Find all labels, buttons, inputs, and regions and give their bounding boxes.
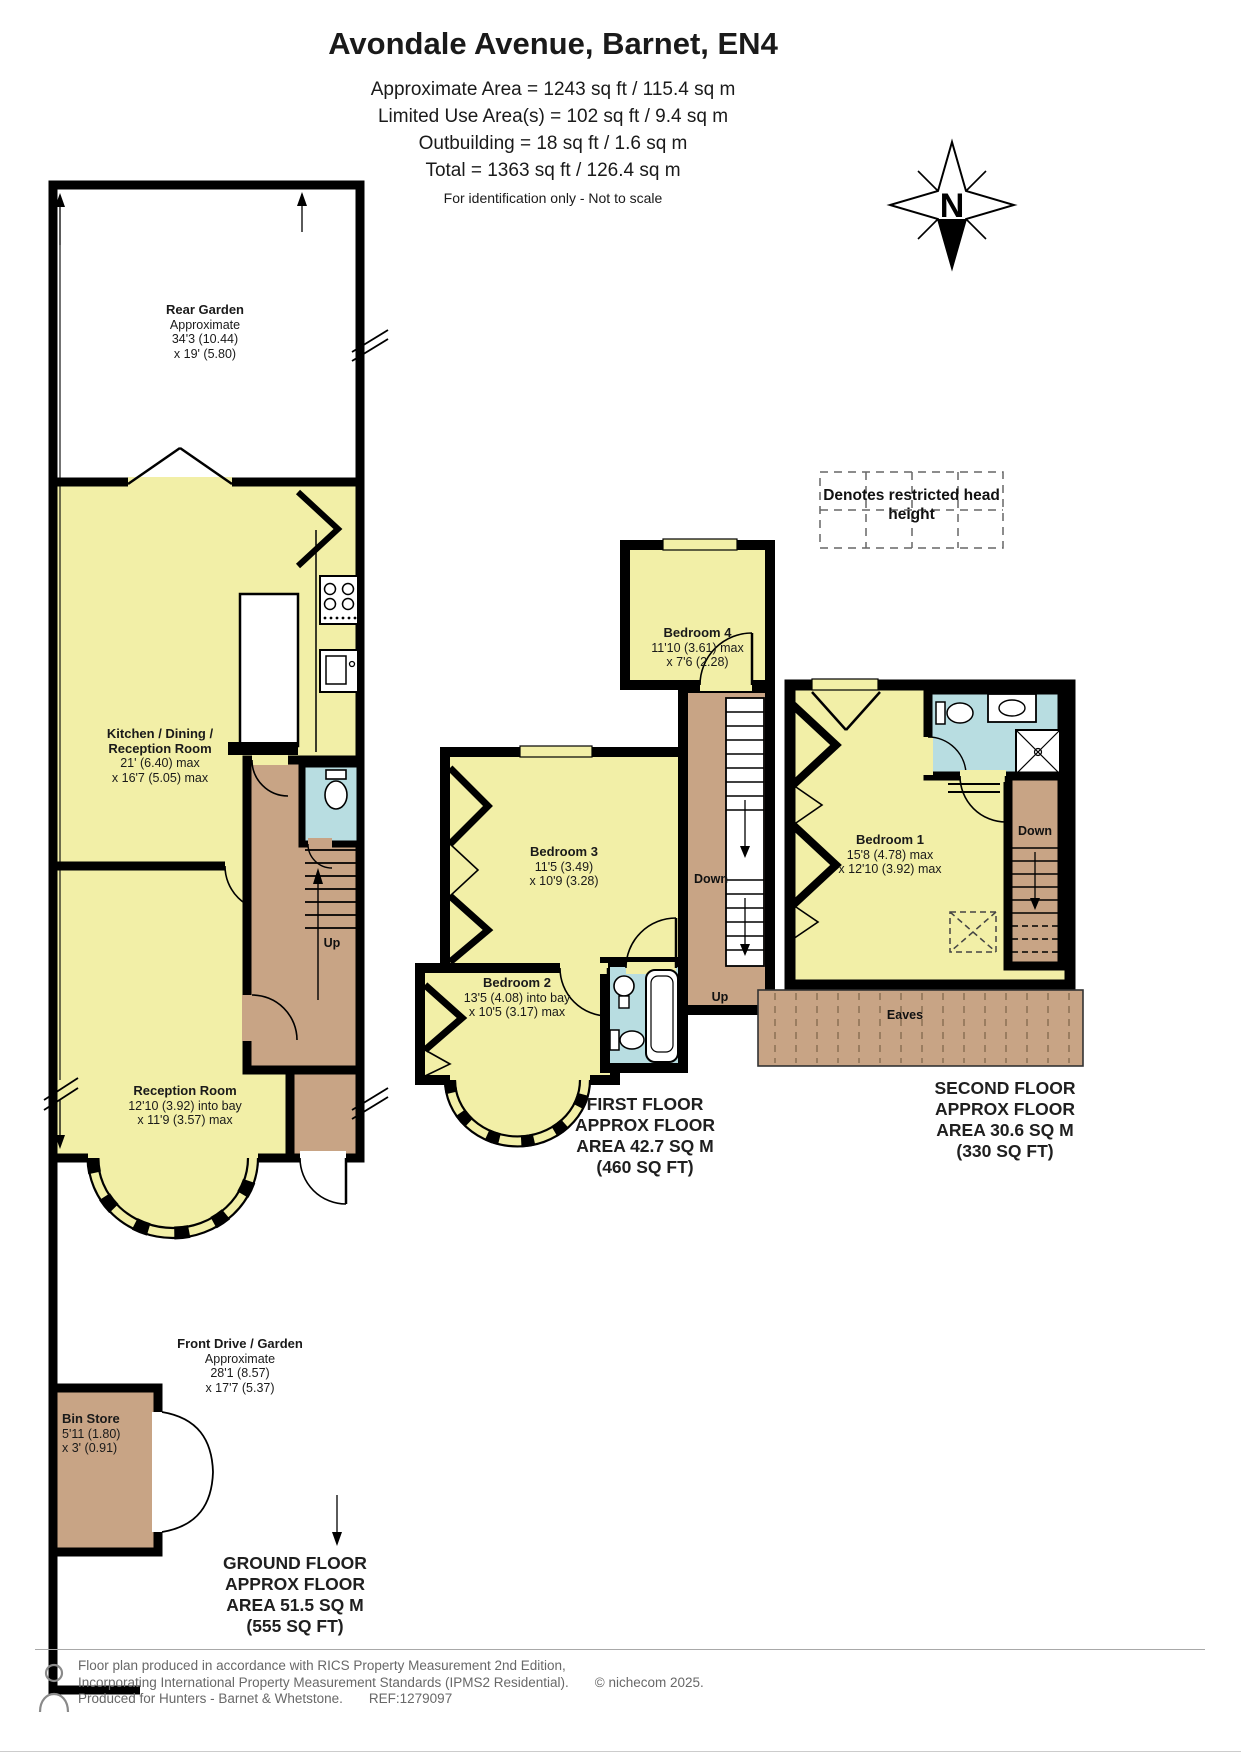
bin-door-arc-top xyxy=(162,1412,213,1472)
porch-hall xyxy=(290,1070,360,1158)
legend-restricted-head-height: Denotes restricted head height xyxy=(818,470,1005,550)
room-label-bedroom-4: Bedroom 4 11'10 (3.61) max x 7'6 (2.28) xyxy=(605,626,790,670)
header: Avondale Avenue, Barnet, EN4 Approximate… xyxy=(0,26,1106,206)
toilet-icon-first-floor xyxy=(610,1030,644,1050)
eaves-area xyxy=(758,990,1083,1066)
room-label-bedroom-1: Bedroom 1 15'8 (4.78) max x 12'10 (3.92)… xyxy=(790,833,990,877)
ground-floor-caption: GROUND FLOOR APPROX FLOOR AREA 51.5 SQ M… xyxy=(145,1553,445,1637)
stairs-up-label-ground: Up xyxy=(312,936,352,950)
footer: Floor plan produced in accordance with R… xyxy=(78,1658,1178,1708)
footer-copyright: © nichecom 2025. xyxy=(595,1675,704,1690)
kitchen-garden-opening xyxy=(128,477,232,488)
bedroom-3-window xyxy=(520,746,592,757)
approximate-area-line: Approximate Area = 1243 sq ft / 115.4 sq… xyxy=(0,76,1106,103)
sink-icon xyxy=(320,650,358,692)
limited-use-area-line: Limited Use Area(s) = 102 sq ft / 9.4 sq… xyxy=(0,103,1106,130)
first-floor-caption: FIRST FLOOR APPROX FLOOR AREA 42.7 SQ M … xyxy=(495,1094,795,1178)
kitchen-island xyxy=(240,594,298,746)
front-door-arc xyxy=(300,1158,346,1204)
footer-line-2: Incorporating International Property Mea… xyxy=(78,1675,1178,1692)
footer-line-3: Produced for Hunters - Barnet & Whetston… xyxy=(78,1691,1178,1708)
total-area-line: Total = 1363 sq ft / 126.4 sq m xyxy=(0,157,1106,184)
legend-text: Denotes restricted head height xyxy=(818,486,1005,524)
toilet-icon xyxy=(325,770,347,809)
bedroom-4-window xyxy=(663,539,737,550)
toilet-icon-second-floor xyxy=(936,702,973,724)
page-title: Avondale Avenue, Barnet, EN4 xyxy=(0,26,1106,62)
first-floor-stairs xyxy=(726,698,764,966)
room-label-reception: Reception Room 12'10 (3.92) into bay x 1… xyxy=(85,1084,285,1128)
disclaimer: For identification only - Not to scale xyxy=(0,190,1106,206)
shower-icon xyxy=(1016,730,1060,774)
hob-icon xyxy=(320,576,358,624)
stairs-down-label-first: Down xyxy=(686,872,736,886)
room-label-bedroom-3: Bedroom 3 11'5 (3.49) x 10'9 (3.28) xyxy=(464,845,664,889)
outbuilding-area-line: Outbuilding = 18 sq ft / 1.6 sq m xyxy=(0,130,1106,157)
bottom-edge-line xyxy=(0,1751,1241,1752)
bedroom-1-window xyxy=(812,679,878,690)
footer-divider xyxy=(35,1649,1205,1650)
stairs-up-label-first: Up xyxy=(698,990,742,1004)
footer-line-1: Floor plan produced in accordance with R… xyxy=(78,1658,1178,1675)
room-label-bedroom-2: Bedroom 2 13'5 (4.08) into bay x 10'5 (3… xyxy=(417,976,617,1020)
second-floor-stairs xyxy=(1008,776,1062,966)
footer-ref: REF:1279097 xyxy=(369,1691,452,1706)
sink-icon-second-floor xyxy=(988,694,1036,722)
second-floor-caption: SECOND FLOOR APPROX FLOOR AREA 30.6 SQ M… xyxy=(855,1078,1155,1162)
bay-window-ground xyxy=(88,1152,258,1238)
bin-door-arc-bottom xyxy=(162,1472,213,1532)
room-label-rear-garden: Rear Garden Approximate 34'3 (10.44) x 1… xyxy=(120,303,290,361)
eaves-label: Eaves xyxy=(870,1008,940,1022)
stairs-down-label-second: Down xyxy=(1010,824,1060,838)
room-label-front-drive: Front Drive / Garden Approximate 28'1 (8… xyxy=(140,1337,340,1395)
bathtub-icon xyxy=(646,970,678,1062)
room-label-kitchen: Kitchen / Dining / Reception Room 21' (6… xyxy=(60,727,260,785)
floorplan-page: { "header": { "title": "Avondale Avenue,… xyxy=(0,0,1241,1755)
room-label-bin-store: Bin Store 5'11 (1.80) x 3' (0.91) xyxy=(62,1412,162,1456)
